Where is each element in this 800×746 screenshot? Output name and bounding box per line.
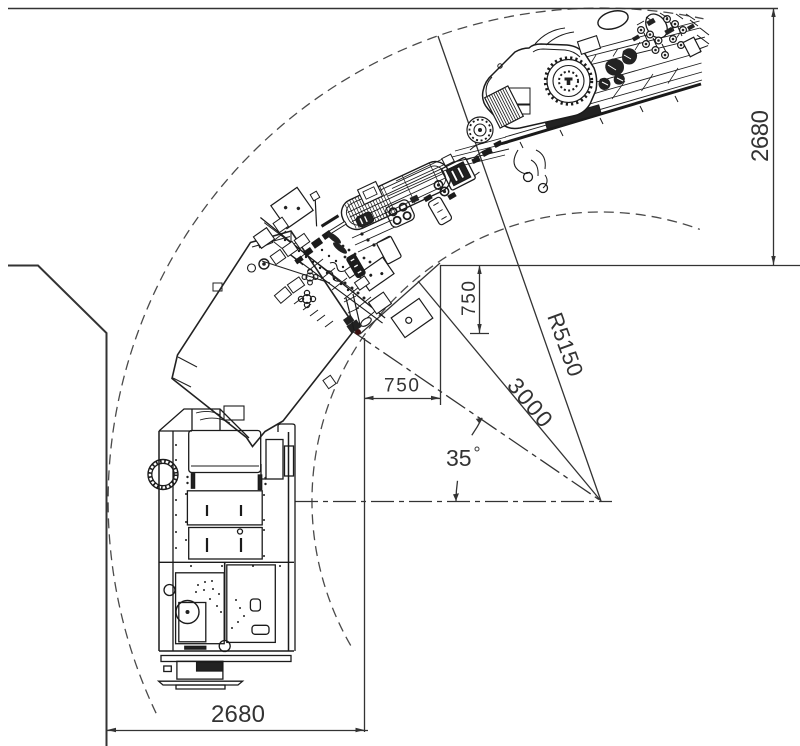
svg-text:35: 35 bbox=[446, 445, 472, 471]
svg-text:2680: 2680 bbox=[747, 110, 774, 162]
svg-text:750: 750 bbox=[384, 376, 419, 397]
svg-text:750: 750 bbox=[459, 281, 480, 316]
svg-text:2680: 2680 bbox=[211, 701, 265, 728]
